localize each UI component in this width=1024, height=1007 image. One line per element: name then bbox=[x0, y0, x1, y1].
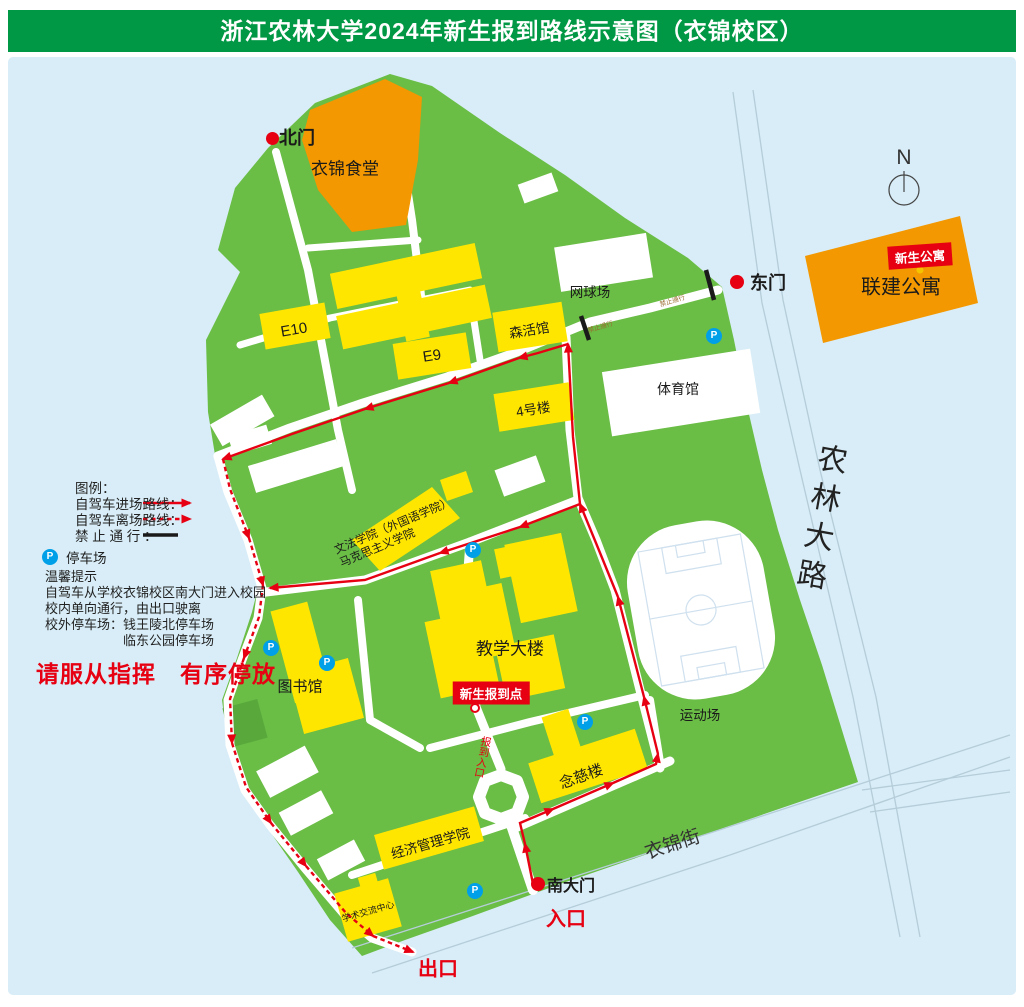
parking-icon: P bbox=[577, 714, 593, 730]
legend-parking-label: 停车场 bbox=[66, 547, 107, 567]
notice-line3: 校外停车场：钱王陵北停车场 bbox=[45, 617, 266, 633]
parking-icon: P bbox=[706, 328, 722, 344]
teaching-building-label: 教学大楼 bbox=[476, 635, 544, 660]
page-title: 浙江农林大学2024年新生报到路线示意图（衣锦校区） bbox=[8, 10, 1016, 52]
compass-n-label: N bbox=[896, 146, 911, 170]
parking-icon: P bbox=[467, 883, 483, 899]
checkin-point-dot bbox=[471, 704, 479, 712]
freshman-apartment-tag: 新生公寓 bbox=[887, 242, 952, 269]
library-label: 图书馆 bbox=[277, 676, 322, 697]
notice-line1: 自驾车从学校衣锦校区南大门进入校园 bbox=[45, 585, 266, 601]
lianjian-apartment-label: 联建公寓 bbox=[861, 271, 941, 300]
compass-icon bbox=[889, 171, 919, 205]
checkin-point-tag: 新生报到点 bbox=[453, 682, 530, 705]
notice-heading: 温馨提示 bbox=[45, 569, 266, 585]
e9-label: E9 bbox=[422, 346, 443, 366]
parking-icon: P bbox=[263, 640, 279, 656]
freshman-route-map-page: 浙江农林大学2024年新生报到路线示意图（衣锦校区） bbox=[0, 0, 1024, 1007]
east-gate-label: 东门 bbox=[750, 269, 786, 295]
canteen-label: 衣锦食堂 bbox=[311, 155, 379, 180]
legend-forbidden-label: 禁 止 通 行 ： bbox=[75, 525, 158, 545]
entrance-label: 入口 bbox=[546, 903, 586, 932]
parking-icon: P bbox=[465, 542, 481, 558]
notice-line2: 校内单向通行，由出口驶离 bbox=[45, 601, 266, 617]
north-gate-dot bbox=[266, 132, 279, 145]
title-bar: 浙江农林大学2024年新生报到路线示意图（衣锦校区） bbox=[8, 10, 1016, 52]
exit-label: 出口 bbox=[418, 953, 458, 982]
campus-map: 北门 东门 南大门 入口 出口 衣锦食堂 联建公寓 新生公寓 网球场 E10 E… bbox=[8, 57, 1016, 995]
gymnasium-label: 体育馆 bbox=[657, 379, 699, 399]
notice-block: 温馨提示 自驾车从学校衣锦校区南大门进入校园 校内单向通行，由出口驶离 校外停车… bbox=[45, 569, 266, 649]
parking-icon: P bbox=[319, 655, 335, 671]
south-gate-dot bbox=[531, 877, 545, 891]
tennis-court-label: 网球场 bbox=[570, 281, 611, 301]
slogan-text: 请服从指挥 有序停放 bbox=[36, 655, 276, 689]
south-gate-label: 南大门 bbox=[547, 872, 595, 896]
sports-field-label: 运动场 bbox=[680, 704, 721, 724]
notice-line3-cont: 临东公园停车场 bbox=[45, 633, 266, 649]
north-gate-label: 北门 bbox=[279, 124, 315, 150]
east-gate-dot bbox=[730, 275, 744, 289]
legend-parking-icon: P bbox=[42, 549, 58, 565]
